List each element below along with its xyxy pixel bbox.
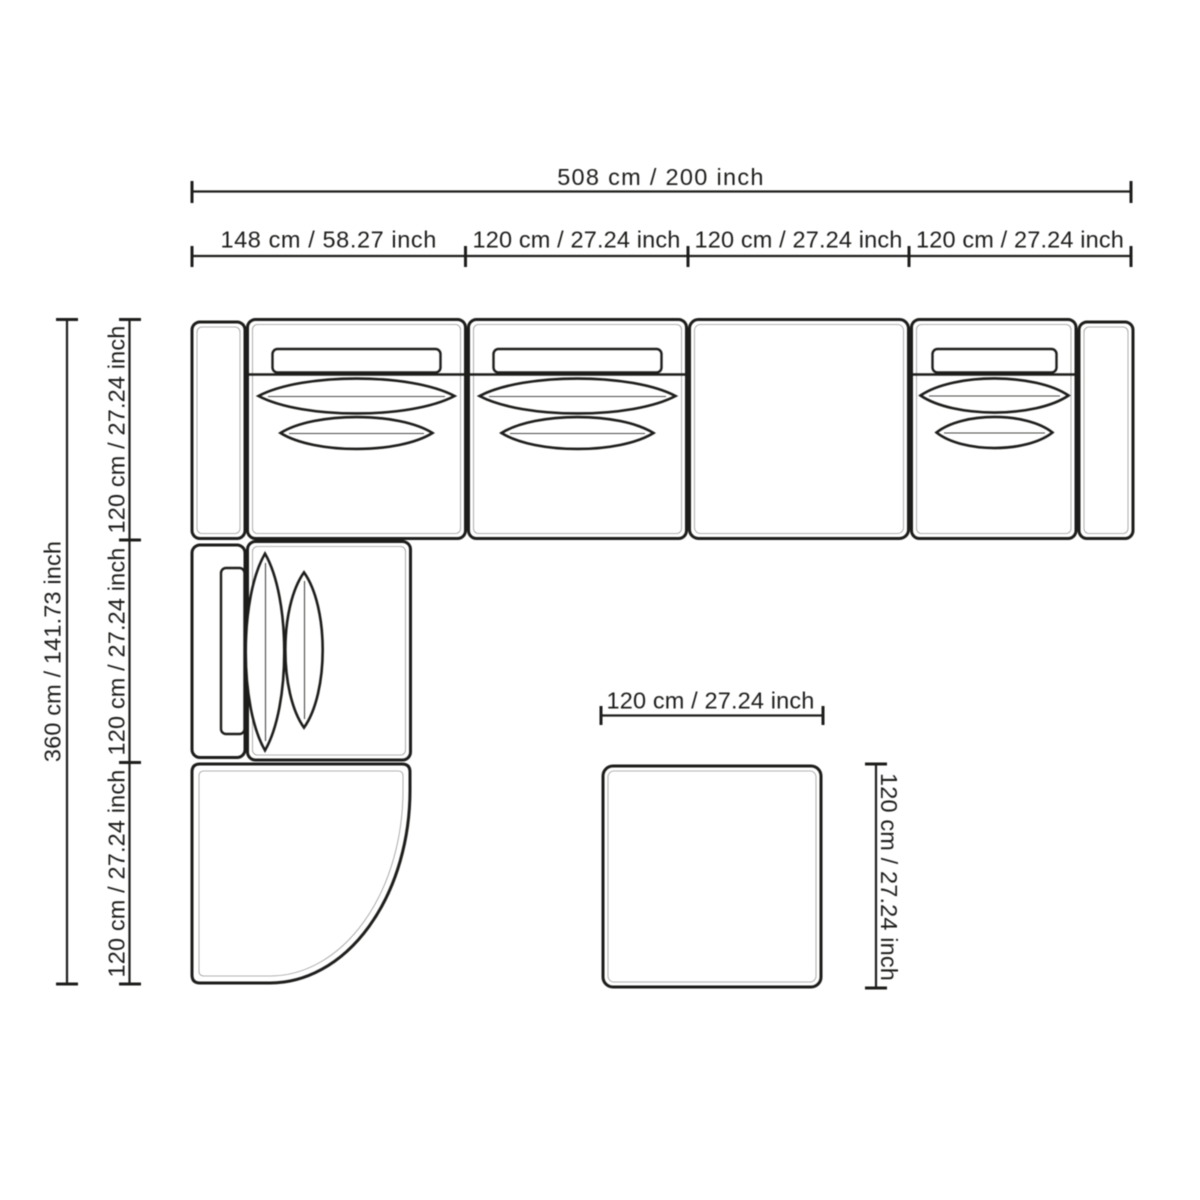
svg-text:148 cm / 58.27 inch: 148 cm / 58.27 inch [220,227,437,253]
svg-text:120 cm / 27.24 inch: 120 cm / 27.24 inch [876,773,902,981]
svg-text:360 cm / 141.73 inch: 360 cm / 141.73 inch [40,541,66,762]
svg-text:508 cm / 200 inch: 508 cm / 200 inch [557,164,765,190]
svg-text:120 cm / 27.24 inch: 120 cm / 27.24 inch [695,227,903,253]
svg-text:120 cm / 27.24 inch: 120 cm / 27.24 inch [104,770,130,978]
svg-text:120 cm / 27.24 inch: 120 cm / 27.24 inch [104,548,130,756]
svg-text:120 cm / 27.24 inch: 120 cm / 27.24 inch [607,688,815,714]
svg-text:120 cm / 27.24 inch: 120 cm / 27.24 inch [916,227,1124,253]
svg-text:120 cm / 27.24 inch: 120 cm / 27.24 inch [104,326,130,534]
svg-text:120 cm / 27.24 inch: 120 cm / 27.24 inch [473,227,681,253]
